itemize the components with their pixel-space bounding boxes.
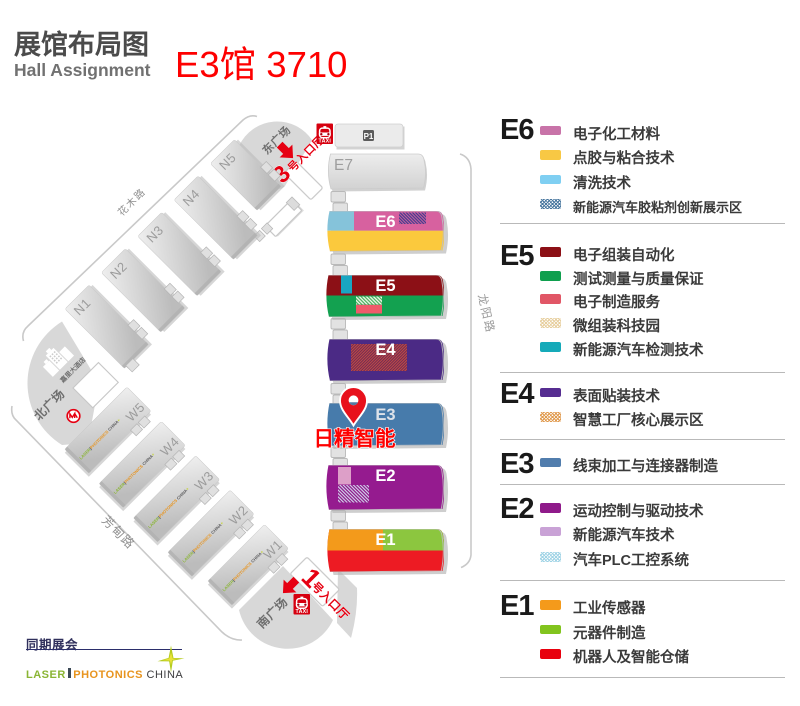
svg-text:龙阳路: 龙阳路 xyxy=(475,293,498,336)
svg-text:E1: E1 xyxy=(375,531,395,549)
svg-text:芳甸路: 芳甸路 xyxy=(99,513,138,552)
svg-text:E4: E4 xyxy=(375,341,396,359)
svg-text:TAXI: TAXI xyxy=(296,609,309,615)
svg-text:P1: P1 xyxy=(364,132,374,141)
svg-text:花木路: 花木路 xyxy=(115,185,149,219)
svg-text:E3: E3 xyxy=(375,406,395,424)
svg-text:E6: E6 xyxy=(375,213,395,231)
svg-text:E7: E7 xyxy=(334,157,353,174)
svg-text:日精智能: 日精智能 xyxy=(314,427,396,451)
svg-text:E5: E5 xyxy=(375,277,395,295)
svg-text:E2: E2 xyxy=(375,467,395,485)
svg-text:TAXI: TAXI xyxy=(319,139,332,145)
